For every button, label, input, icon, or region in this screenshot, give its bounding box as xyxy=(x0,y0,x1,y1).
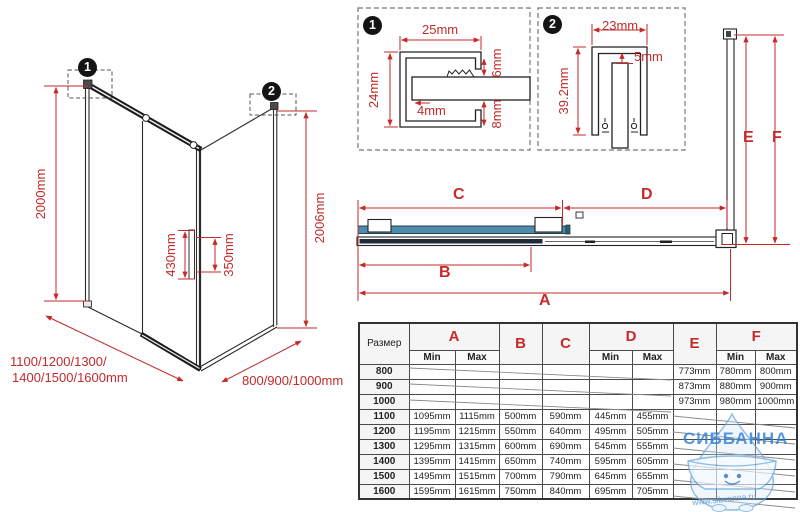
size-cell: 1500 xyxy=(359,469,409,484)
cell-a-min: 1395mm xyxy=(409,454,455,469)
cell-a-min xyxy=(409,379,455,394)
size-cell: 1600 xyxy=(359,484,409,499)
section-dimension-lines xyxy=(358,35,790,301)
cell-e xyxy=(673,454,716,469)
detail2-width-label: 23mm xyxy=(602,19,638,33)
cell-f-min: 980mm xyxy=(716,394,755,409)
detail1-bottom-gap-label: 8mm xyxy=(490,87,504,141)
cell-d-min: 545mm xyxy=(589,439,632,454)
spec-sheet: Размер A B C D E F Min Max Min Max Min M… xyxy=(0,0,800,512)
cell-d-min xyxy=(589,379,632,394)
roller-block xyxy=(535,218,562,233)
a-min-header: Min xyxy=(409,350,455,364)
cell-a-min: 1295mm xyxy=(409,439,455,454)
width-options-line1: 1100/1200/1300/ xyxy=(10,355,107,369)
cell-d-min: 445mm xyxy=(589,409,632,424)
iso-rails xyxy=(84,80,279,370)
cell-c: 640mm xyxy=(542,424,589,439)
cell-f-max xyxy=(755,469,797,484)
section-e-label: E xyxy=(743,131,754,145)
cell-b: 750mm xyxy=(499,484,542,499)
cell-c xyxy=(542,364,589,379)
detail1-seal xyxy=(447,70,474,77)
cell-f-max: 800mm xyxy=(755,364,797,379)
table-row: 900 873mm 880mm 900mm xyxy=(359,379,797,394)
f-min-header: Min xyxy=(716,350,755,364)
cell-f-min: 880mm xyxy=(716,379,755,394)
side-panel xyxy=(727,37,734,230)
cell-a-min: 1195mm xyxy=(409,424,455,439)
cell-a-min xyxy=(409,364,455,379)
cell-a-max: 1115mm xyxy=(455,409,499,424)
cell-f-max: 1000mm xyxy=(755,394,797,409)
cell-d-max: 605mm xyxy=(632,454,673,469)
fixed-panel-rail xyxy=(357,237,731,246)
dimensions-table: Размер A B C D E F Min Max Min Max Min M… xyxy=(358,322,798,500)
table-row: 1400 1395mm 1415mm 650mm 740mm 595mm 605… xyxy=(359,454,797,469)
cell-d-min: 695mm xyxy=(589,484,632,499)
cell-d-max: 655mm xyxy=(632,469,673,484)
size-cell: 1100 xyxy=(359,409,409,424)
size-header: Размер xyxy=(359,323,409,364)
iso-dimension-lines xyxy=(44,86,317,382)
col-d-header: D xyxy=(589,323,673,350)
cell-d-max: 505mm xyxy=(632,424,673,439)
col-b-header: B xyxy=(499,323,542,364)
size-cell: 1400 xyxy=(359,454,409,469)
table-row: 800 773mm 780mm 800mm xyxy=(359,364,797,379)
col-e-header: E xyxy=(673,323,716,364)
table-header-row: Размер A B C D E F xyxy=(359,323,797,350)
cell-a-min: 1095mm xyxy=(409,409,455,424)
cell-b: 550mm xyxy=(499,424,542,439)
cell-f-max xyxy=(755,409,797,424)
detail2-height-label: 39.2mm xyxy=(557,64,571,118)
iso-height-right-label: 2006mm xyxy=(313,191,327,245)
detail2-dimension-lines xyxy=(573,24,647,135)
cell-c: 790mm xyxy=(542,469,589,484)
cell-a-min: 1595mm xyxy=(409,484,455,499)
cell-a-max xyxy=(455,394,499,409)
section-d-label: D xyxy=(641,188,653,202)
roller-block xyxy=(368,220,391,233)
cell-b xyxy=(499,379,542,394)
section-b-label: B xyxy=(439,266,451,280)
size-cell: 1200 xyxy=(359,424,409,439)
cell-c: 740mm xyxy=(542,454,589,469)
section-f-label: F xyxy=(772,131,782,145)
f-max-header: Max xyxy=(755,350,797,364)
detail1-top-gap-label: 6mm xyxy=(490,36,504,90)
cell-d-max: 705mm xyxy=(632,484,673,499)
cell-e: 773mm xyxy=(673,364,716,379)
width-options-line2: 1400/1500/1600mm xyxy=(12,371,128,385)
d-min-header: Min xyxy=(589,350,632,364)
size-cell: 1000 xyxy=(359,394,409,409)
cell-a-max xyxy=(455,364,499,379)
detail2-gap-label: 5mm xyxy=(634,50,663,64)
cell-d-max: 555mm xyxy=(632,439,673,454)
cell-b: 500mm xyxy=(499,409,542,424)
cell-e xyxy=(673,409,716,424)
cell-e: 973mm xyxy=(673,394,716,409)
watermark-title: СИББАННА xyxy=(683,432,788,446)
cell-c: 840mm xyxy=(542,484,589,499)
size-cell: 900 xyxy=(359,379,409,394)
cell-f-min: 780mm xyxy=(716,364,755,379)
cell-d-max: 455mm xyxy=(632,409,673,424)
cell-d-min xyxy=(589,364,632,379)
detail1-width-label: 25mm xyxy=(422,23,458,37)
cell-b xyxy=(499,394,542,409)
size-cell: 1300 xyxy=(359,439,409,454)
section-a-label: A xyxy=(539,294,551,308)
cell-f-min xyxy=(716,409,755,424)
cell-d-max xyxy=(632,394,673,409)
cell-a-min: 1495mm xyxy=(409,469,455,484)
cell-a-max: 1415mm xyxy=(455,454,499,469)
handle-spacing-label: 350mm xyxy=(222,228,236,282)
cell-f-min xyxy=(716,469,755,484)
detail-1-badge: 1 xyxy=(363,16,382,35)
cell-a-min xyxy=(409,394,455,409)
detail1-height-label: 24mm xyxy=(367,63,381,117)
door-handle xyxy=(189,230,195,279)
handle-height-label: 430mm xyxy=(164,228,178,282)
cell-e: 873mm xyxy=(673,379,716,394)
cell-b: 650mm xyxy=(499,454,542,469)
iso-callout-2-badge: 2 xyxy=(262,82,281,101)
table-row: 1000 973mm 980mm 1000mm xyxy=(359,394,797,409)
cell-c: 590mm xyxy=(542,409,589,424)
cell-b xyxy=(499,364,542,379)
cell-f-max: 900mm xyxy=(755,379,797,394)
cell-f-max xyxy=(755,454,797,469)
section-c-label: C xyxy=(453,188,465,202)
cell-b: 600mm xyxy=(499,439,542,454)
col-a-header: A xyxy=(409,323,499,350)
table-row: 1100 1095mm 1115mm 500mm 590mm 445mm 455… xyxy=(359,409,797,424)
cell-d-min: 595mm xyxy=(589,454,632,469)
cell-b: 700mm xyxy=(499,469,542,484)
a-max-header: Max xyxy=(455,350,499,364)
cell-a-max xyxy=(455,379,499,394)
depth-options-label: 800/900/1000mm xyxy=(242,374,343,388)
corner-block xyxy=(716,230,736,248)
cell-d-max xyxy=(632,379,673,394)
cell-c: 690mm xyxy=(542,439,589,454)
col-c-header: C xyxy=(542,323,589,364)
iso-structure xyxy=(86,84,278,371)
cell-d-min xyxy=(589,394,632,409)
iso-callout-1-badge: 1 xyxy=(78,58,97,77)
section-assembly xyxy=(357,29,737,248)
sliding-glass xyxy=(358,226,566,234)
cell-a-max: 1215mm xyxy=(455,424,499,439)
cell-c xyxy=(542,394,589,409)
cell-c xyxy=(542,379,589,394)
d-max-header: Max xyxy=(632,350,673,364)
cell-a-max: 1615mm xyxy=(455,484,499,499)
cell-a-max: 1515mm xyxy=(455,469,499,484)
cell-d-max xyxy=(632,364,673,379)
cell-e xyxy=(673,469,716,484)
cell-a-max: 1315mm xyxy=(455,439,499,454)
cell-f-min xyxy=(716,454,755,469)
cell-d-min: 645mm xyxy=(589,469,632,484)
detail2-rollers xyxy=(602,118,638,132)
cell-d-min: 495mm xyxy=(589,424,632,439)
iso-height-left-label: 2000mm xyxy=(34,167,48,221)
cell-f-max xyxy=(755,484,797,499)
size-cell: 800 xyxy=(359,364,409,379)
detail-2-badge: 2 xyxy=(543,15,562,34)
detail1-glass-label: 4mm xyxy=(417,104,446,118)
table-row: 1500 1495mm 1515mm 700mm 790mm 645mm 655… xyxy=(359,469,797,484)
col-f-header: F xyxy=(716,323,797,350)
